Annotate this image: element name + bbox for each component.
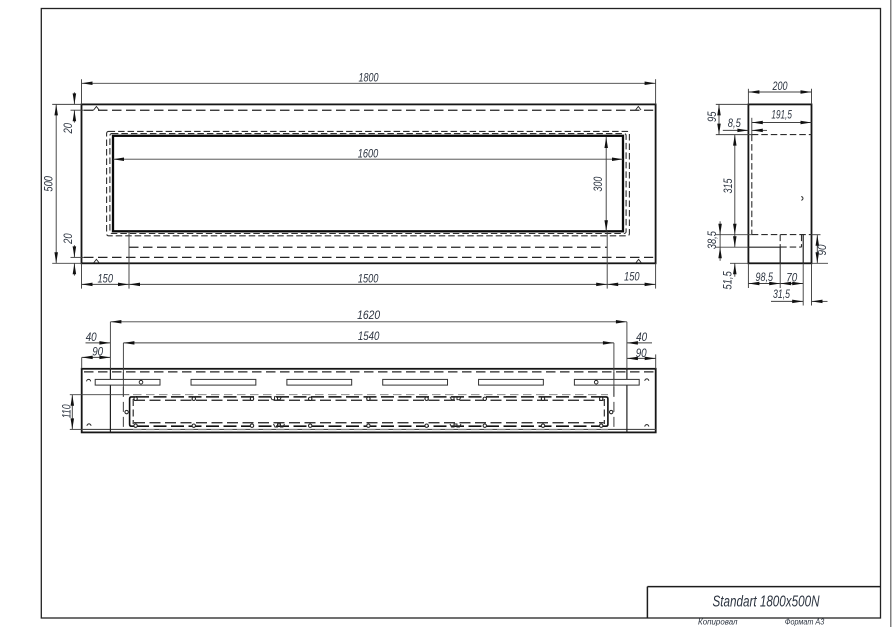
svg-text:500: 500 bbox=[43, 176, 55, 192]
svg-text:38,5: 38,5 bbox=[707, 231, 719, 249]
svg-text:20: 20 bbox=[63, 122, 75, 134]
svg-text:1620: 1620 bbox=[357, 310, 381, 322]
svg-text:98,5: 98,5 bbox=[756, 272, 774, 284]
svg-text:90: 90 bbox=[92, 347, 104, 359]
svg-text:1600: 1600 bbox=[358, 149, 379, 161]
svg-text:Standart 1800x500N: Standart 1800x500N bbox=[713, 594, 821, 611]
svg-text:315: 315 bbox=[723, 178, 735, 193]
svg-text:300: 300 bbox=[593, 176, 605, 191]
svg-text:90: 90 bbox=[817, 244, 829, 256]
svg-text:Формат А3: Формат А3 bbox=[785, 617, 825, 627]
svg-text:1540: 1540 bbox=[358, 331, 380, 343]
svg-text:40: 40 bbox=[86, 332, 98, 344]
svg-text:Копировал: Копировал bbox=[698, 617, 738, 627]
svg-text:90: 90 bbox=[636, 348, 648, 360]
svg-text:1500: 1500 bbox=[358, 274, 379, 286]
svg-text:110: 110 bbox=[61, 404, 73, 418]
svg-text:150: 150 bbox=[98, 274, 114, 286]
svg-text:200: 200 bbox=[772, 81, 788, 93]
svg-text:20: 20 bbox=[63, 233, 75, 245]
svg-text:1800: 1800 bbox=[359, 73, 379, 85]
svg-text:40: 40 bbox=[636, 332, 648, 344]
svg-text:51,5: 51,5 bbox=[723, 271, 735, 290]
svg-text:150: 150 bbox=[624, 272, 640, 284]
svg-text:31,5: 31,5 bbox=[773, 289, 790, 301]
svg-text:191,5: 191,5 bbox=[771, 110, 792, 122]
svg-text:8,5: 8,5 bbox=[728, 118, 741, 130]
svg-text:70: 70 bbox=[786, 272, 798, 284]
svg-text:95: 95 bbox=[707, 111, 719, 122]
